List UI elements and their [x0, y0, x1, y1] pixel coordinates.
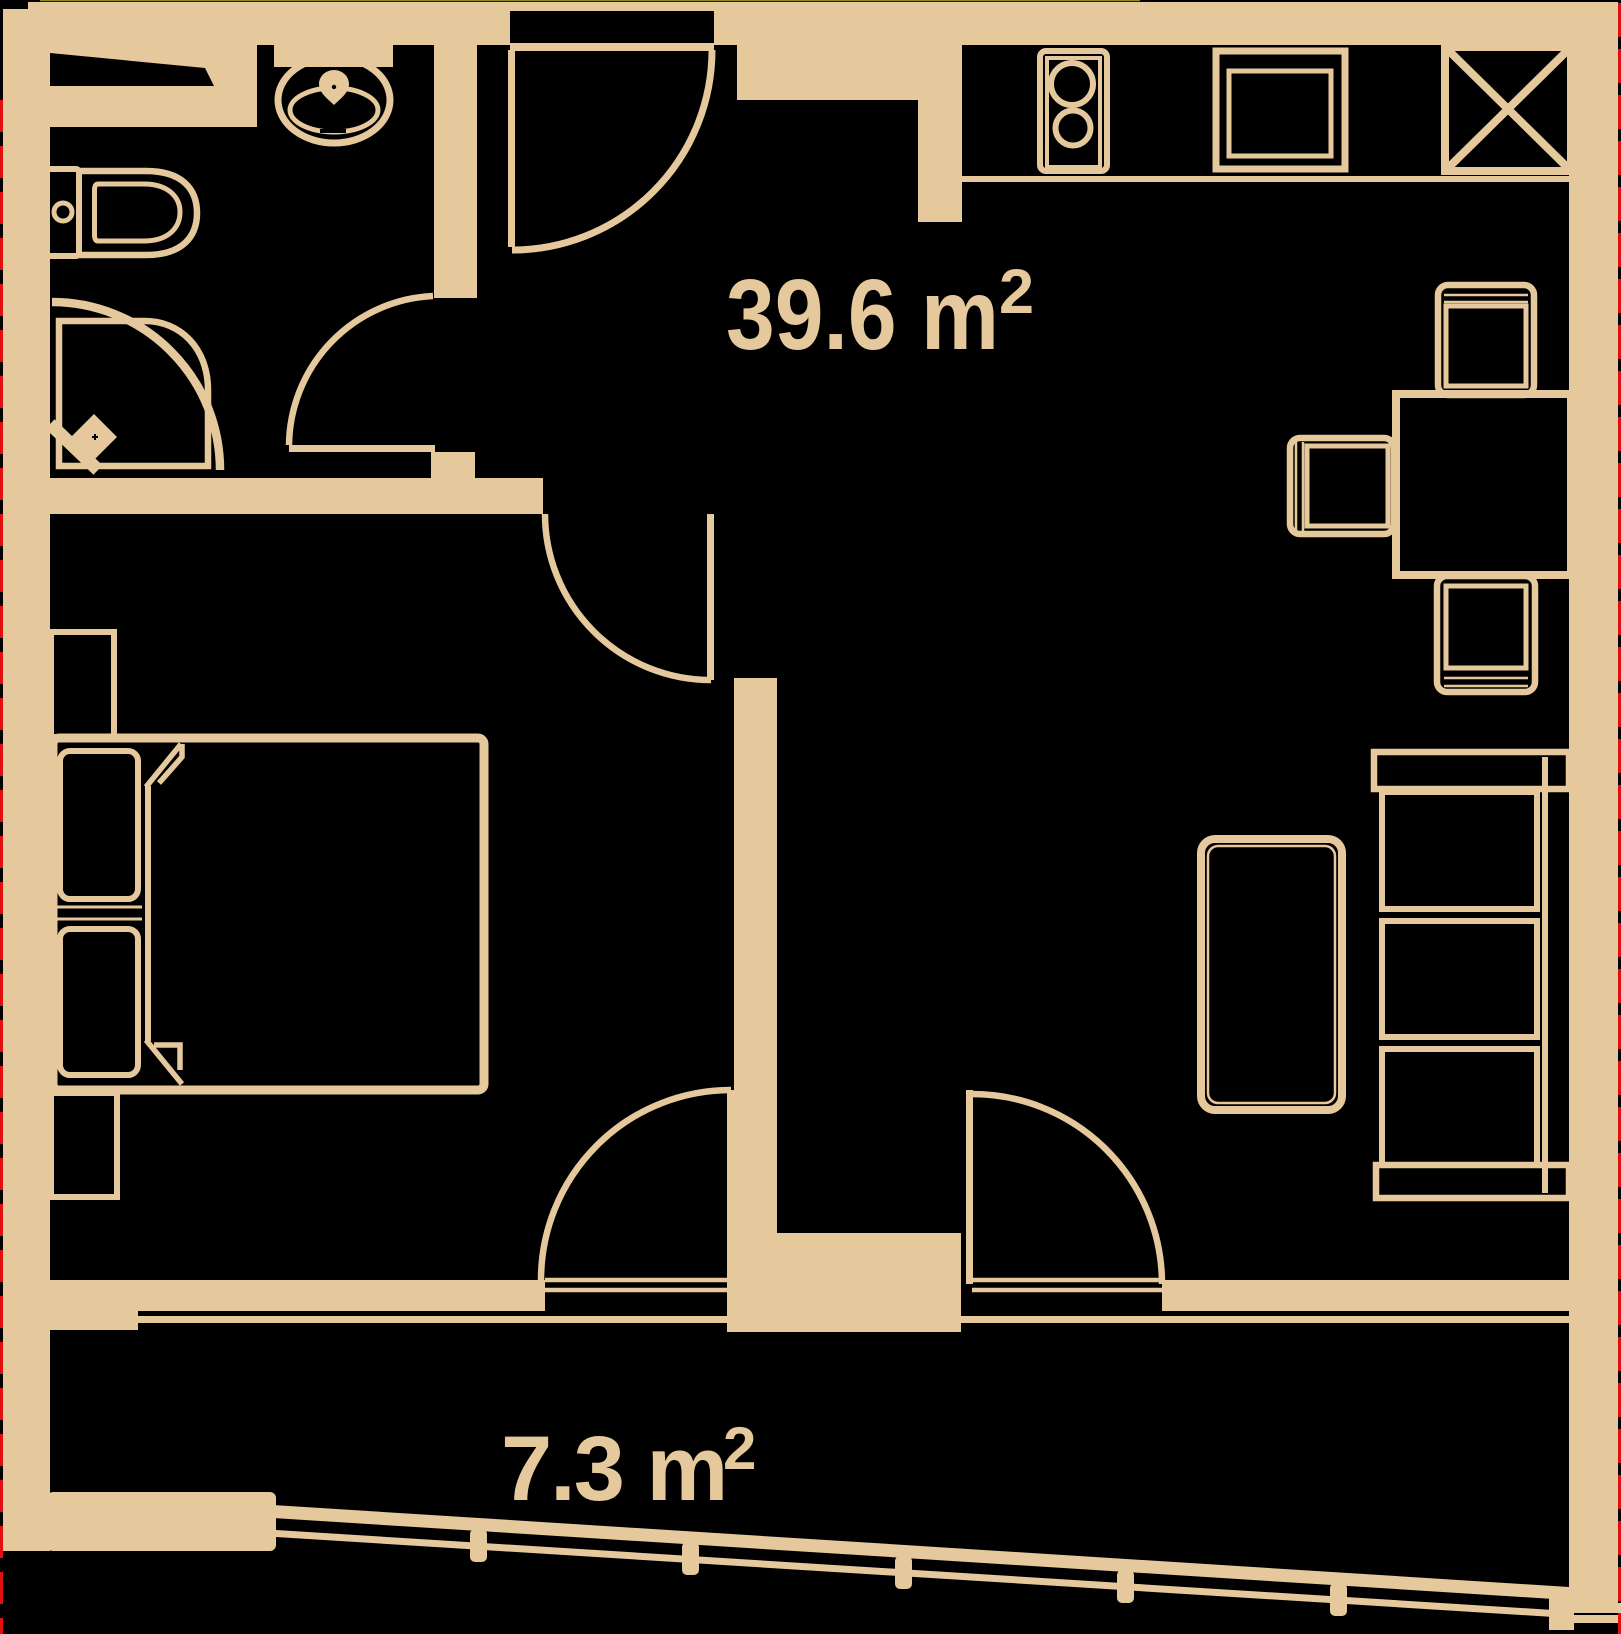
svg-text:7.3 m: 7.3 m: [501, 1418, 726, 1520]
svg-text:39.6 m: 39.6 m: [726, 259, 999, 371]
svg-text:2: 2: [999, 257, 1034, 327]
svg-text:2: 2: [723, 1415, 756, 1482]
